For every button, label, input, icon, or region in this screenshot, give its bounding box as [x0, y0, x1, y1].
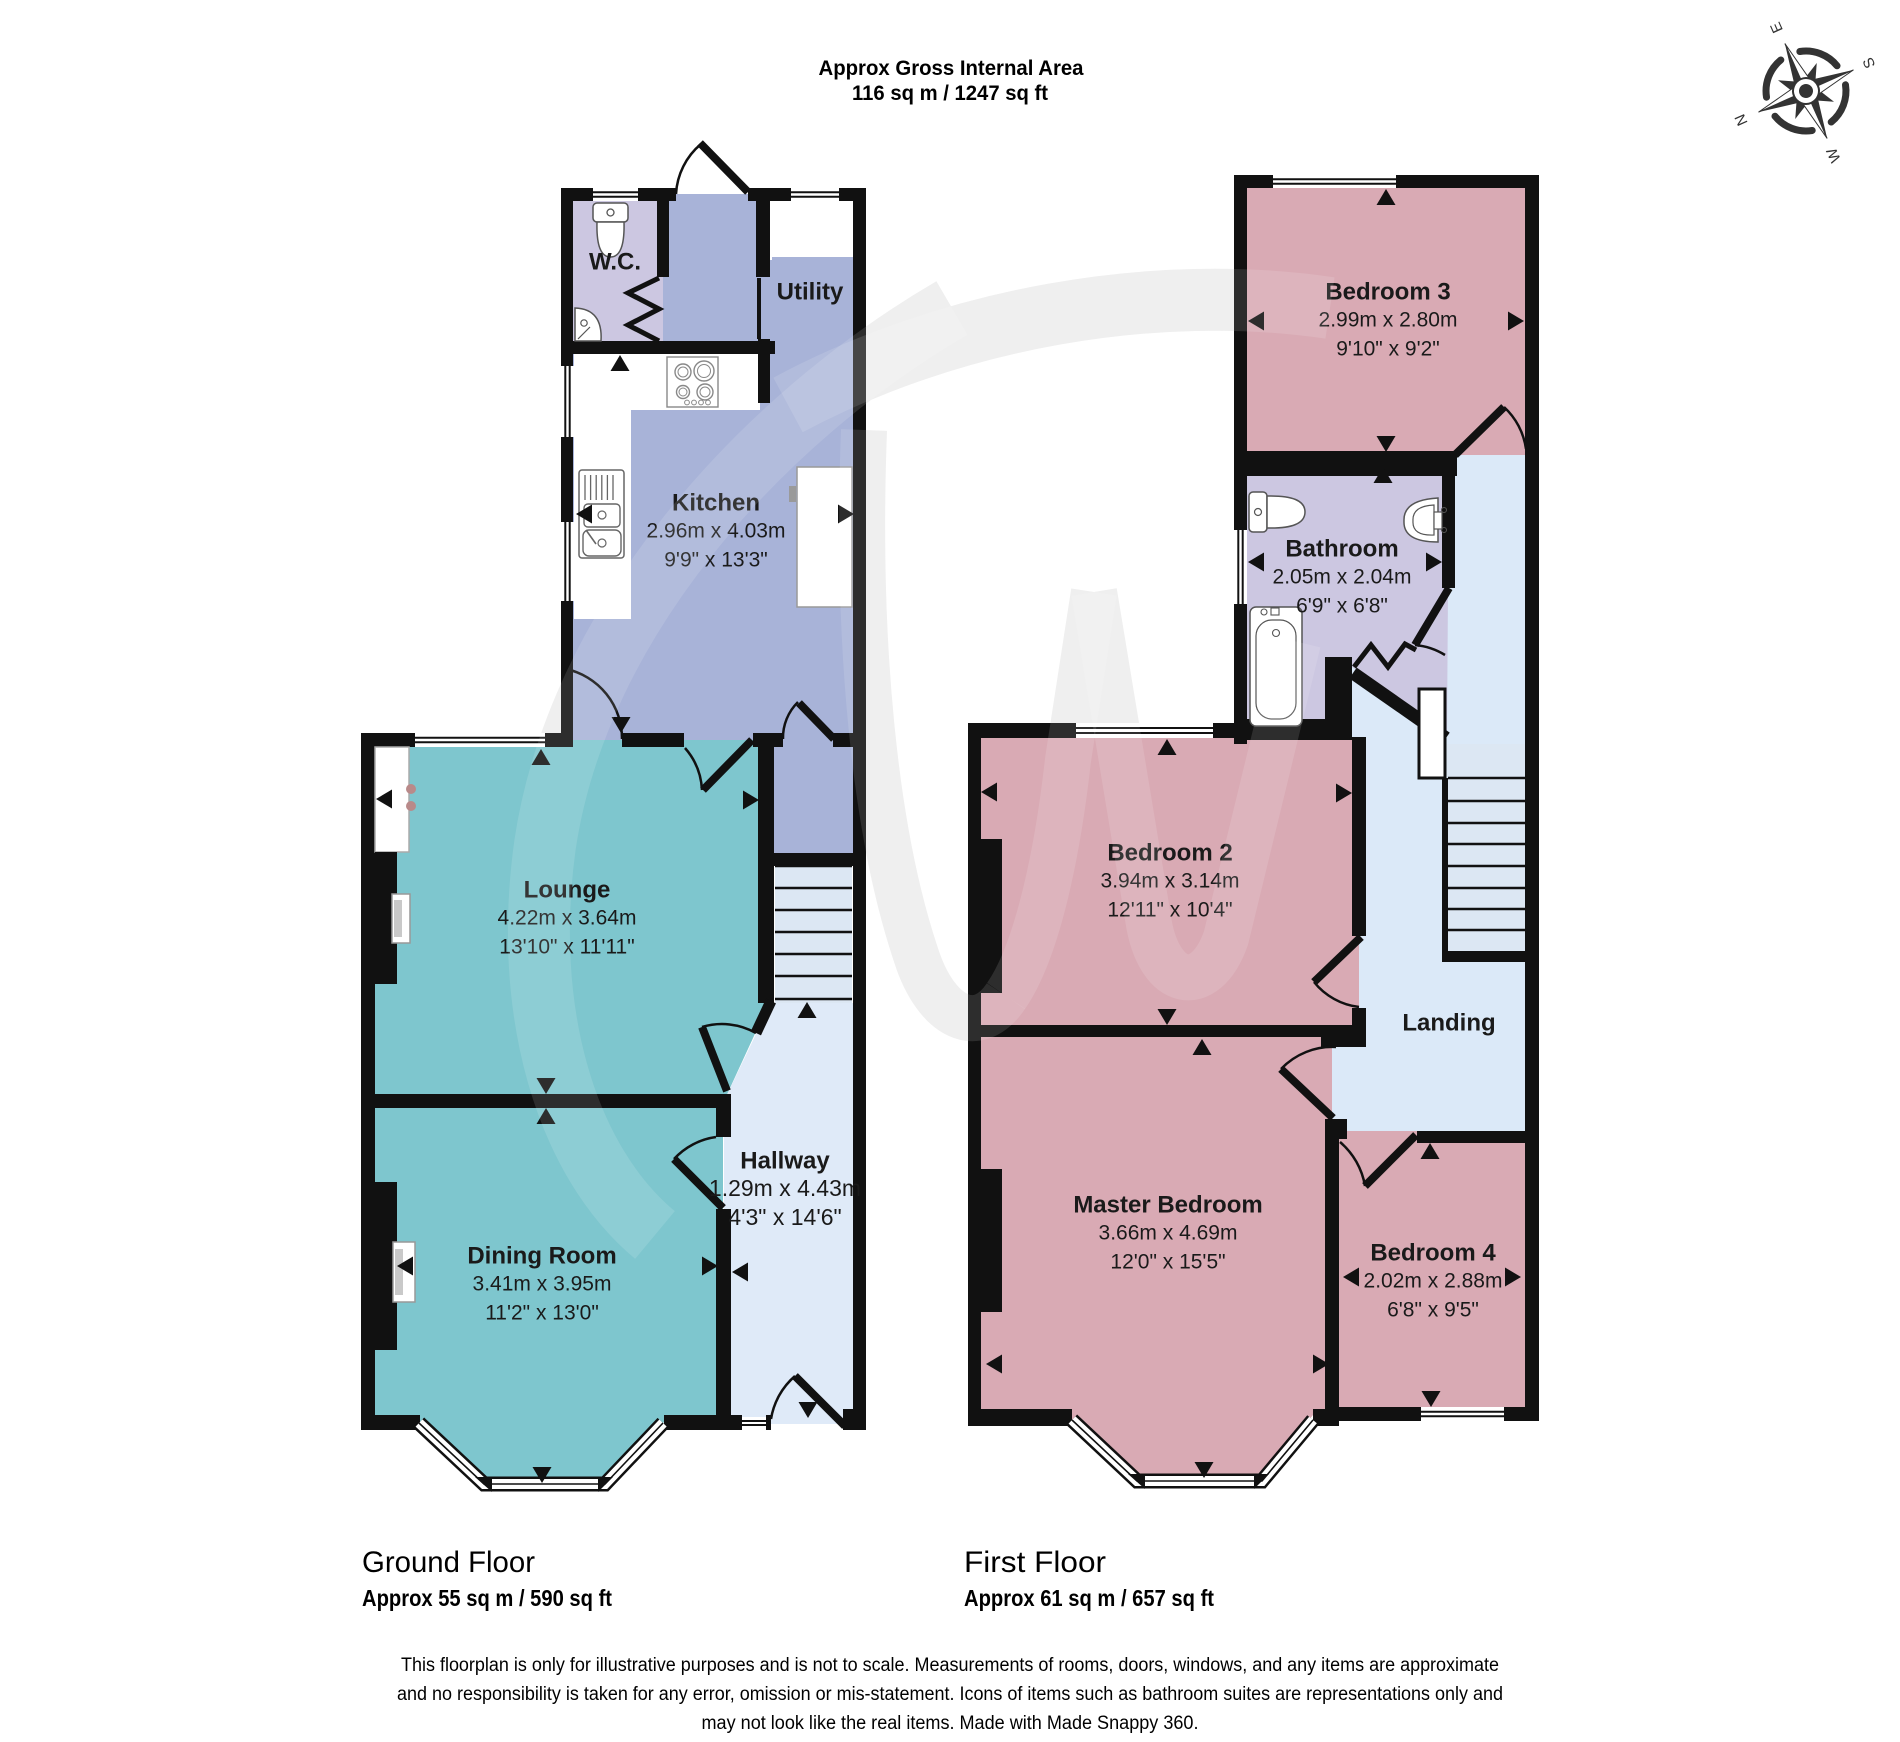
svg-text:Hallway: Hallway [740, 1147, 830, 1174]
svg-text:Approx Gross Internal Area: Approx Gross Internal Area [819, 57, 1084, 80]
svg-text:Dining Room: Dining Room [467, 1242, 616, 1269]
svg-text:6'9" x 6'8": 6'9" x 6'8" [1296, 595, 1388, 618]
svg-text:116 sq m / 1247 sq ft: 116 sq m / 1247 sq ft [852, 82, 1048, 105]
svg-text:12'0" x 15'5": 12'0" x 15'5" [1110, 1251, 1225, 1274]
svg-text:W.C.: W.C. [589, 248, 641, 275]
svg-text:and no responsibility is taken: and no responsibility is taken for any e… [397, 1684, 1503, 1705]
svg-text:First Floor: First Floor [964, 1546, 1106, 1579]
svg-text:Ground Floor: Ground Floor [362, 1546, 535, 1579]
svg-text:3.41m x 3.95m: 3.41m x 3.95m [473, 1273, 612, 1296]
svg-text:2.02m x 2.88m: 2.02m x 2.88m [1364, 1270, 1503, 1293]
svg-text:4'3" x 14'6": 4'3" x 14'6" [728, 1204, 841, 1230]
svg-text:Landing: Landing [1402, 1009, 1495, 1036]
svg-text:This floorplan is only for ill: This floorplan is only for illustrative … [401, 1655, 1499, 1676]
svg-text:Master Bedroom: Master Bedroom [1073, 1191, 1262, 1218]
svg-text:Bedroom 4: Bedroom 4 [1370, 1239, 1496, 1266]
svg-text:Approx 61 sq m / 657 sq ft: Approx 61 sq m / 657 sq ft [964, 1585, 1214, 1611]
svg-text:6'8" x 9'5": 6'8" x 9'5" [1387, 1299, 1479, 1322]
svg-text:Bathroom: Bathroom [1285, 535, 1398, 562]
svg-text:11'2" x 13'0": 11'2" x 13'0" [485, 1302, 599, 1325]
svg-text:may not look like the real ite: may not look like the real items. Made w… [702, 1713, 1199, 1734]
svg-text:9'10" x 9'2": 9'10" x 9'2" [1336, 338, 1440, 361]
svg-text:Utility: Utility [777, 278, 844, 305]
svg-text:Approx 55 sq m / 590 sq ft: Approx 55 sq m / 590 sq ft [362, 1585, 612, 1611]
svg-text:2.99m x 2.80m: 2.99m x 2.80m [1319, 309, 1458, 332]
svg-text:2.05m x 2.04m: 2.05m x 2.04m [1273, 566, 1412, 589]
svg-text:Bedroom 3: Bedroom 3 [1325, 278, 1450, 305]
svg-text:1.29m x 4.43m: 1.29m x 4.43m [709, 1175, 861, 1201]
svg-text:3.66m x 4.69m: 3.66m x 4.69m [1099, 1222, 1238, 1245]
